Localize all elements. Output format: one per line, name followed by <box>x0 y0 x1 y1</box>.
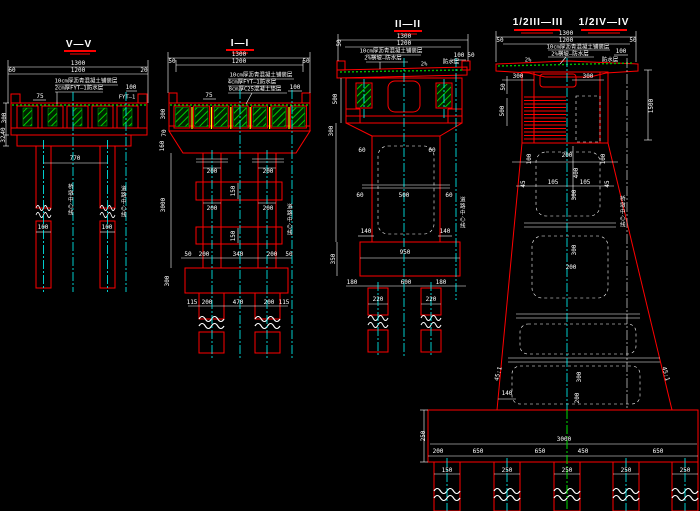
cad-drawing-canvas: V—V13001200602010cm厚沥青混凝土铺装层2cm厚FYT—1防水层… <box>0 0 700 511</box>
view-V-V <box>3 51 148 292</box>
drawing-geometry <box>0 0 700 511</box>
view-I-I <box>168 50 310 358</box>
view-II-II <box>336 31 470 356</box>
